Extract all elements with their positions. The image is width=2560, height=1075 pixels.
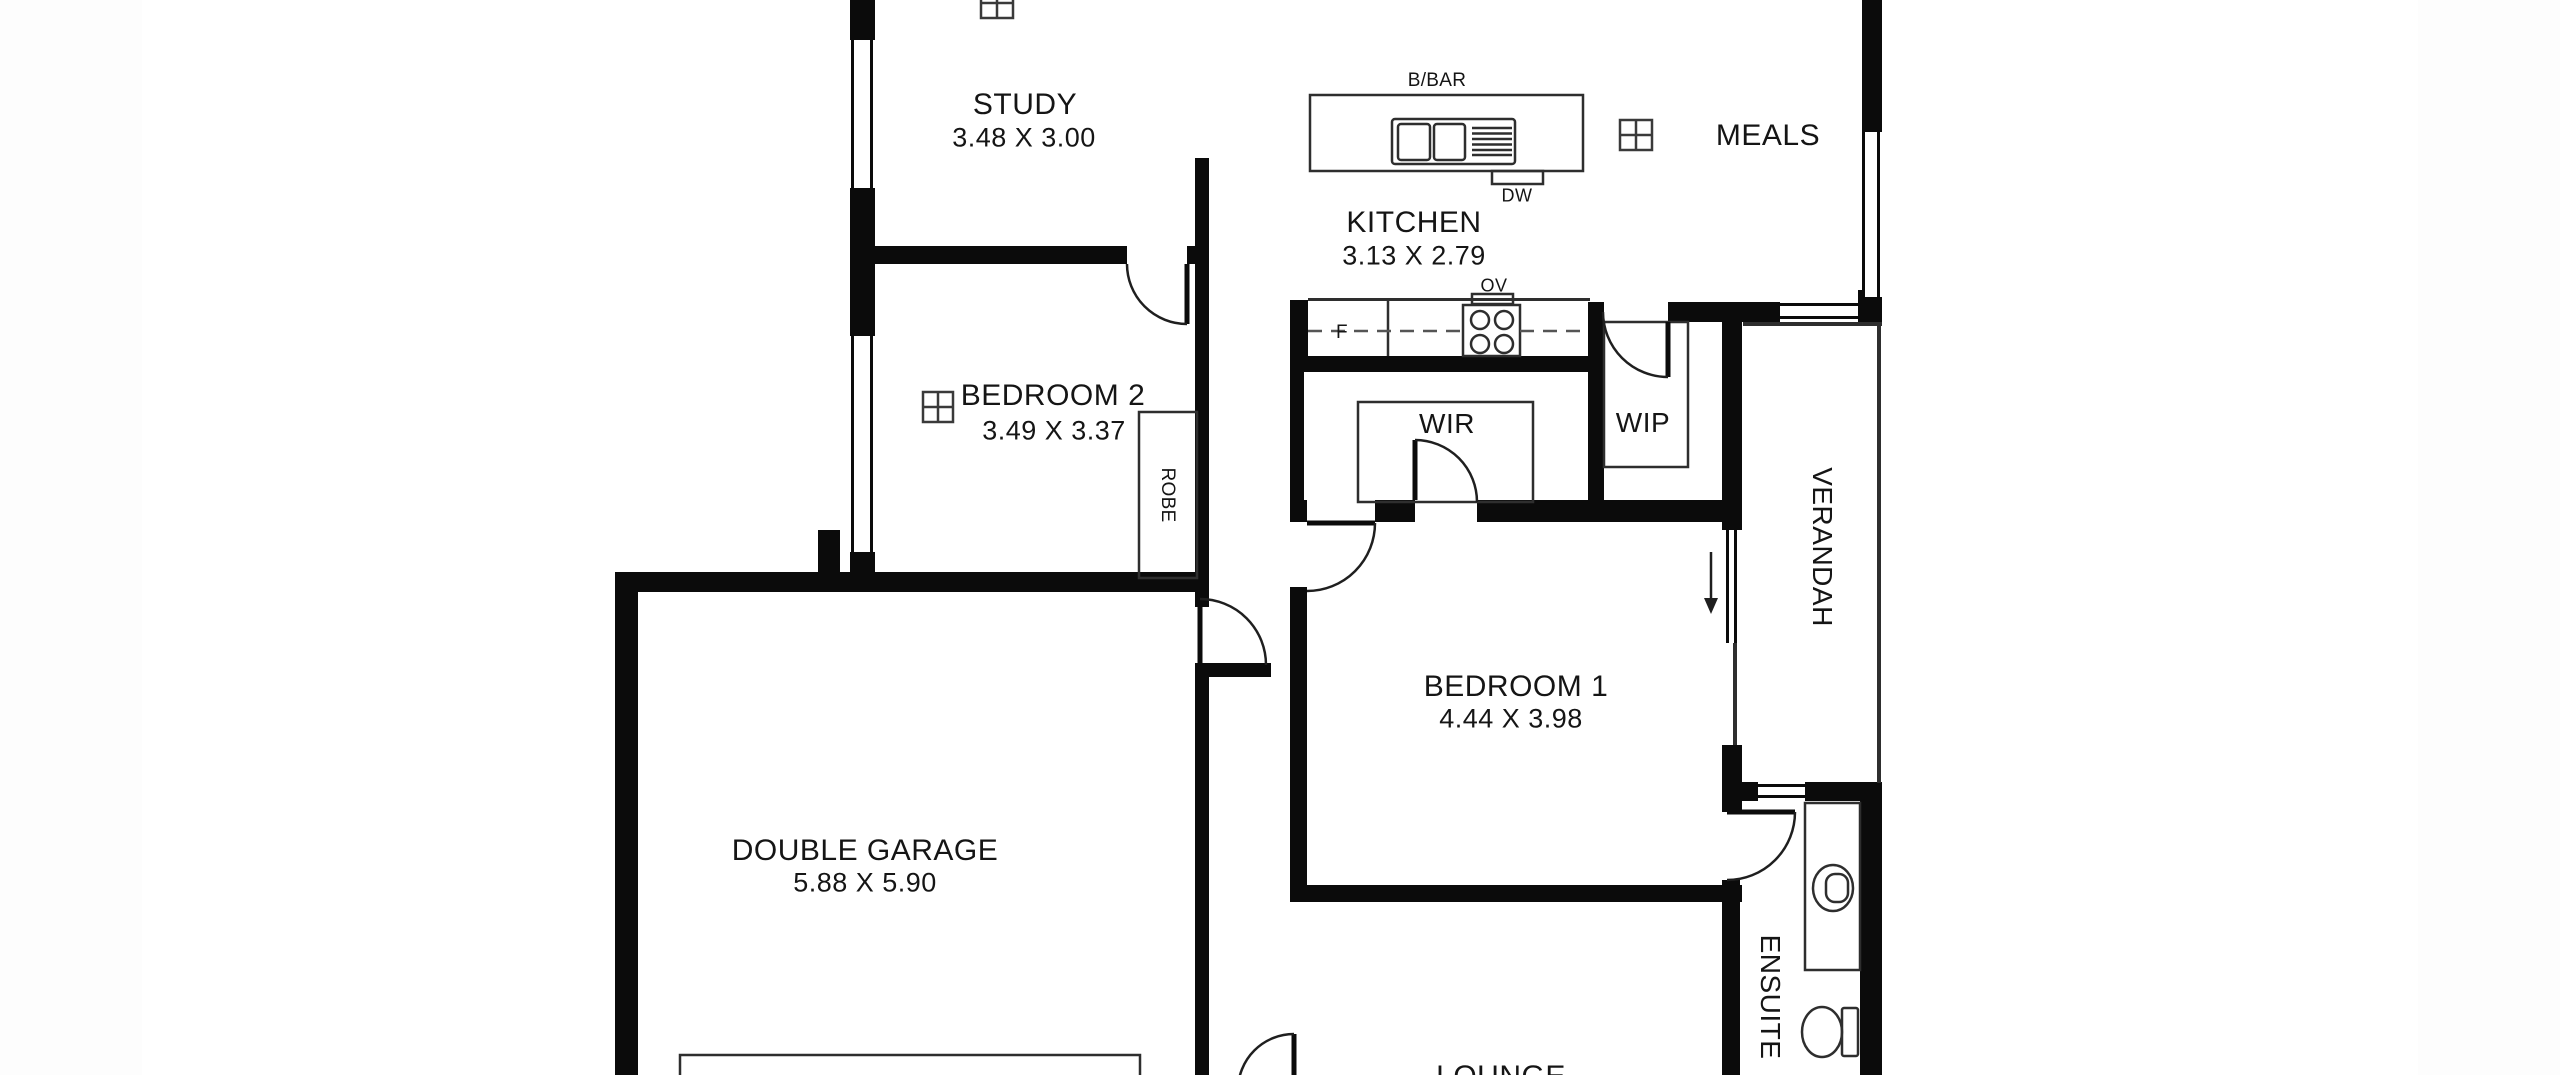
window-bed2-left bbox=[850, 336, 875, 552]
door-ensuite bbox=[1727, 812, 1795, 880]
room-label-bedroom2: BEDROOM 2 bbox=[961, 379, 1146, 413]
fixed-glass-line bbox=[1733, 643, 1737, 745]
walls bbox=[615, 0, 1882, 1075]
wall bbox=[1862, 297, 1882, 322]
wall-mid-vertical-lower bbox=[1195, 663, 1209, 1075]
verandah-outer-line bbox=[1877, 326, 1881, 783]
room-dims-bedroom1: 4.44 X 3.98 bbox=[1439, 704, 1583, 735]
room-label-verandah: VERANDAH bbox=[1806, 467, 1838, 627]
room-label-study: STUDY bbox=[973, 88, 1077, 122]
room-label-wip: WIP bbox=[1616, 407, 1670, 439]
room-label-wir: WIR bbox=[1419, 408, 1475, 440]
ensuite-fixtures bbox=[1802, 865, 1858, 1057]
wall-ensuite-top bbox=[1742, 782, 1758, 801]
room-dims-garage: 5.88 X 5.90 bbox=[793, 868, 937, 899]
garage-door-panel bbox=[680, 1055, 1140, 1075]
dishwasher-unit bbox=[1492, 171, 1543, 184]
wall bbox=[850, 0, 875, 40]
wall-kitchen-bottom bbox=[1290, 356, 1605, 372]
room-label-robe: ROBE bbox=[1156, 467, 1178, 522]
fixture-label-dw: DW bbox=[1502, 186, 1533, 207]
room-label-ensuite: ENSUITE bbox=[1754, 935, 1786, 1060]
wall-verandah-top bbox=[1668, 302, 1780, 322]
bench-edge-line bbox=[1308, 298, 1590, 301]
sliding-door-arrow bbox=[1704, 552, 1718, 614]
wall-garage-left bbox=[615, 572, 638, 1075]
wall bbox=[1375, 500, 1415, 522]
room-label-bedroom1: BEDROOM 1 bbox=[1424, 670, 1609, 704]
floorplan-canvas: STUDY 3.48 X 3.00 MEALS B/BAR DW KITCHEN… bbox=[0, 0, 2560, 1075]
toilet-icon bbox=[1802, 1007, 1858, 1057]
room-label-garage: DOUBLE GARAGE bbox=[732, 834, 999, 868]
window-grid-icon bbox=[981, 0, 1013, 18]
wall-porch-pier bbox=[818, 530, 840, 576]
wall-hall-stub bbox=[1195, 663, 1271, 677]
room-label-kitchen: KITCHEN bbox=[1346, 206, 1481, 240]
window-verandah-top bbox=[1780, 302, 1858, 322]
wip-shelving bbox=[1604, 322, 1688, 467]
wall-ensuite-top bbox=[1805, 782, 1882, 801]
basin-icon bbox=[1813, 865, 1853, 911]
wall-bed1-left bbox=[1290, 587, 1307, 902]
window-grid-icon bbox=[1620, 120, 1652, 150]
door-entry-lounge bbox=[1238, 1034, 1294, 1075]
room-dims-kitchen: 3.13 X 2.79 bbox=[1342, 241, 1486, 272]
wall bbox=[1290, 500, 1307, 522]
wall-verandah-inner bbox=[1722, 302, 1742, 530]
wall-ensuite-right bbox=[1860, 801, 1882, 1075]
wall-wir-left bbox=[1290, 360, 1304, 513]
wall-garage-top bbox=[618, 572, 1209, 592]
door-wir bbox=[1415, 440, 1477, 502]
wall-right-top bbox=[1862, 0, 1882, 132]
fixture-label-bbar: B/BAR bbox=[1408, 70, 1467, 92]
fixture-label-fridge: F bbox=[1336, 322, 1348, 344]
wall-wir-wip-divider bbox=[1588, 302, 1604, 513]
door-bedroom2 bbox=[1127, 264, 1187, 324]
window-grid-icon bbox=[923, 392, 953, 422]
door-bedroom1 bbox=[1307, 523, 1375, 591]
room-dims-study: 3.48 X 3.00 bbox=[952, 123, 1096, 154]
wall-bed1-top bbox=[1477, 500, 1722, 522]
window-meals-right bbox=[1862, 132, 1882, 297]
room-label-lounge: LOUNGE bbox=[1436, 1060, 1566, 1075]
room-dims-bedroom2: 3.49 X 3.37 bbox=[982, 416, 1126, 447]
wall-study-bed2-divider bbox=[850, 246, 1127, 264]
wall-bed1-right-lower bbox=[1722, 745, 1742, 812]
sink-icon bbox=[1392, 119, 1515, 164]
cooktop-icon bbox=[1463, 294, 1520, 356]
floorplan-drawing bbox=[0, 0, 2560, 1075]
window-ensuite-top bbox=[1758, 782, 1805, 801]
window-study-left bbox=[850, 40, 875, 188]
room-label-meals: MEALS bbox=[1716, 119, 1820, 153]
verandah-edge-line bbox=[1743, 322, 1882, 326]
fixture-label-ov: OV bbox=[1480, 276, 1507, 297]
wall-lounge-ensuite bbox=[1722, 880, 1740, 1075]
door-garage-hall bbox=[1200, 599, 1266, 665]
wall-bed1-bottom bbox=[1290, 885, 1742, 902]
sliding-door-bed1-verandah bbox=[1726, 530, 1737, 643]
